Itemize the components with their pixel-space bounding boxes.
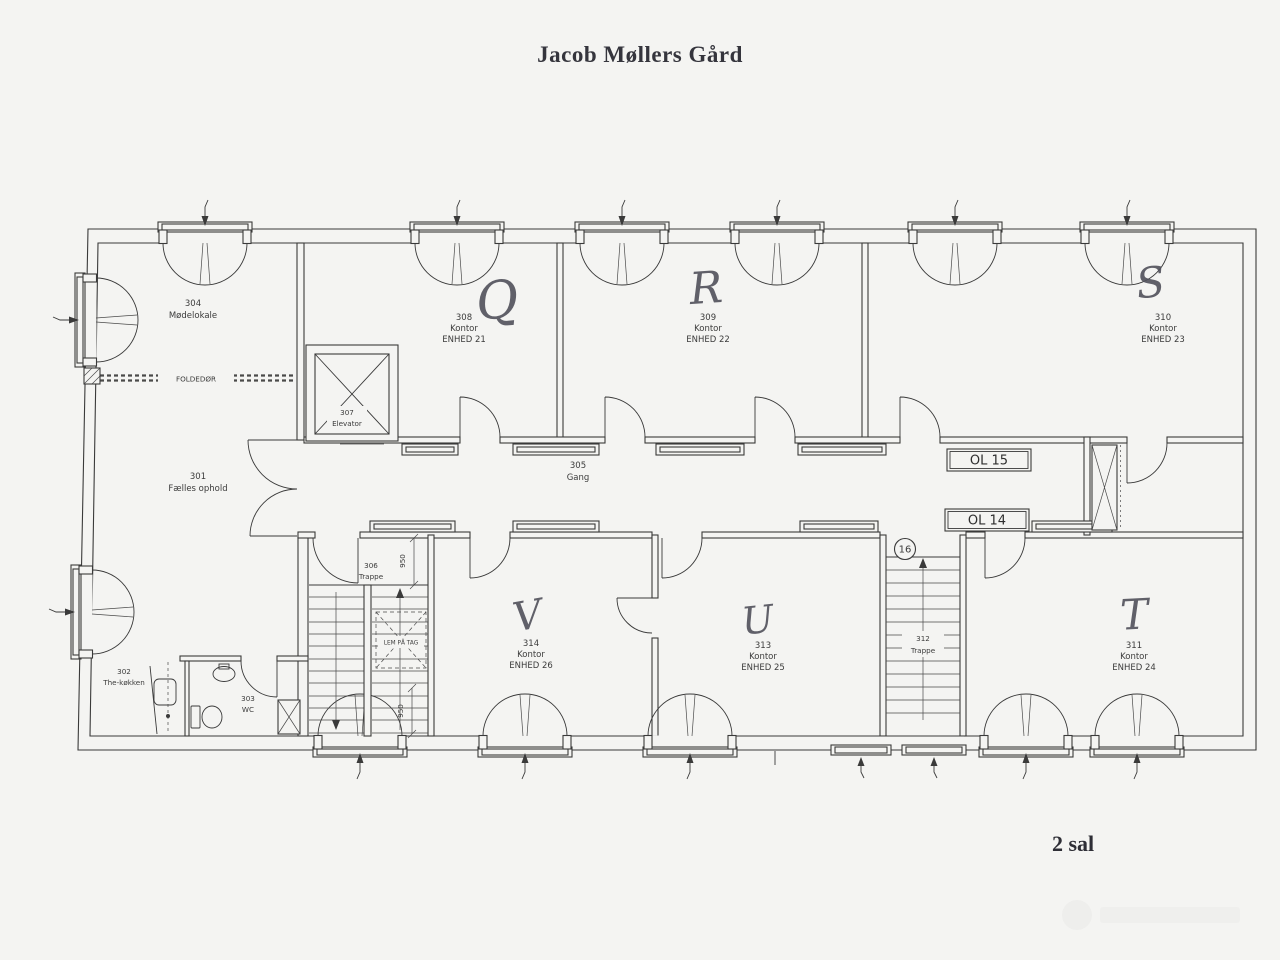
room-unit: ENHED 26 <box>509 661 553 671</box>
room-306-label: 306 Trappe <box>358 561 384 581</box>
toilet-bowl <box>202 706 222 728</box>
handwritten-letter: R <box>687 262 725 315</box>
window <box>53 273 138 367</box>
room-303-label: 303 WC <box>241 694 255 714</box>
room-unit: ENHED 25 <box>741 663 785 673</box>
node-16-marker: 16 <box>895 539 916 560</box>
room-number: 314 <box>523 639 539 649</box>
room-unit: ENHED 24 <box>1112 663 1156 673</box>
room-302-label: 302 The-køkken <box>102 667 145 687</box>
room-313-label: U 313 Kontor ENHED 25 <box>739 596 784 673</box>
room-name: Kontor <box>694 324 722 334</box>
room-number: 302 <box>117 667 131 676</box>
ol15-label: OL 15 <box>970 454 1008 469</box>
handwritten-letter: Q <box>473 269 522 333</box>
room-number: 310 <box>1155 313 1171 323</box>
handwritten-letter: V <box>510 590 550 641</box>
room-name: The-køkken <box>102 678 145 687</box>
roof-hatch: LEM PÅ TAG <box>376 612 426 668</box>
room-name: Trappe <box>910 646 936 655</box>
toilet-tank <box>191 706 200 728</box>
room-305-label: 305 Gang <box>567 461 590 483</box>
watermark-text-blur <box>1100 907 1240 923</box>
room-unit: ENHED 22 <box>686 335 730 345</box>
dimension-950-lower: 950 <box>396 684 416 738</box>
room-number: 311 <box>1126 641 1142 651</box>
room-number: 308 <box>456 313 472 323</box>
window <box>1090 694 1184 779</box>
wc-fixtures <box>191 664 235 728</box>
node-16-label: 16 <box>899 545 912 556</box>
floor-plan-drawing: LEM PÅ TAG 950 950 <box>0 0 1280 960</box>
room-309-label: R 309 Kontor ENHED 22 <box>686 262 730 345</box>
room-name: Elevator <box>332 419 362 428</box>
room-name: Mødelokale <box>169 311 217 321</box>
room-number: 305 <box>570 461 586 471</box>
room-name: Fælles ophold <box>168 484 227 494</box>
window <box>49 565 134 659</box>
room-name: Kontor <box>450 324 478 334</box>
floor-label: 2 sal <box>1052 831 1094 857</box>
ol14-box: OL 14 <box>945 509 1029 531</box>
room-name: Gang <box>567 473 590 483</box>
folding-door-label: FOLDEDØR <box>176 375 216 384</box>
dimension-950-upper: 950 <box>398 534 418 589</box>
room-number: 309 <box>700 313 716 323</box>
handwritten-letter: U <box>739 596 777 643</box>
room-number: 306 <box>364 561 378 570</box>
room-name: Kontor <box>517 650 545 660</box>
room-name: Kontor <box>1149 324 1177 334</box>
room-name: Kontor <box>749 652 777 662</box>
kitchen-fixtures <box>154 662 176 734</box>
roof-hatch-label: LEM PÅ TAG <box>384 640 419 647</box>
watermark <box>1062 892 1252 938</box>
dim-label: 950 <box>398 554 407 568</box>
window <box>979 694 1073 779</box>
ol14-label: OL 14 <box>968 514 1006 529</box>
duct-shaft-wc <box>278 700 300 734</box>
elevator-shaft <box>306 345 398 444</box>
room-name: Trappe <box>358 572 384 581</box>
window <box>158 200 252 285</box>
ol15-box: OL 15 <box>947 449 1031 471</box>
room-number: 313 <box>755 641 771 651</box>
room-unit: ENHED 21 <box>442 335 486 345</box>
room-314-label: V 314 Kontor ENHED 26 <box>509 590 553 671</box>
room-number: 312 <box>916 634 930 643</box>
room-304-label: 304 Mødelokale <box>169 299 217 321</box>
room-311-label: T 311 Kontor ENHED 24 <box>1112 589 1156 673</box>
room-308-label: Q 308 Kontor ENHED 21 <box>442 269 521 345</box>
room-number: 307 <box>340 408 354 417</box>
dim-label: 950 <box>396 704 405 718</box>
duct-shaft-right <box>1092 445 1121 530</box>
window <box>575 200 669 285</box>
room-number: 301 <box>190 472 206 482</box>
handwritten-letter: T <box>1119 589 1153 640</box>
room-number: 304 <box>185 299 201 309</box>
window <box>313 694 407 779</box>
room-301-label: 301 Fælles ophold <box>168 472 227 494</box>
outer-walls <box>78 229 1256 750</box>
stair-exit-sill <box>902 737 966 779</box>
room-unit: ENHED 23 <box>1141 335 1185 345</box>
window <box>908 200 1002 285</box>
window <box>730 200 824 285</box>
room-name: Kontor <box>1120 652 1148 662</box>
window-sill-small <box>831 737 891 779</box>
handwritten-letter: S <box>1134 257 1168 309</box>
room-number: 303 <box>241 694 255 703</box>
room-310-label: S 310 Kontor ENHED 23 <box>1134 257 1185 345</box>
room-name: WC <box>242 705 254 714</box>
watermark-logo <box>1062 900 1092 930</box>
window <box>478 694 572 779</box>
